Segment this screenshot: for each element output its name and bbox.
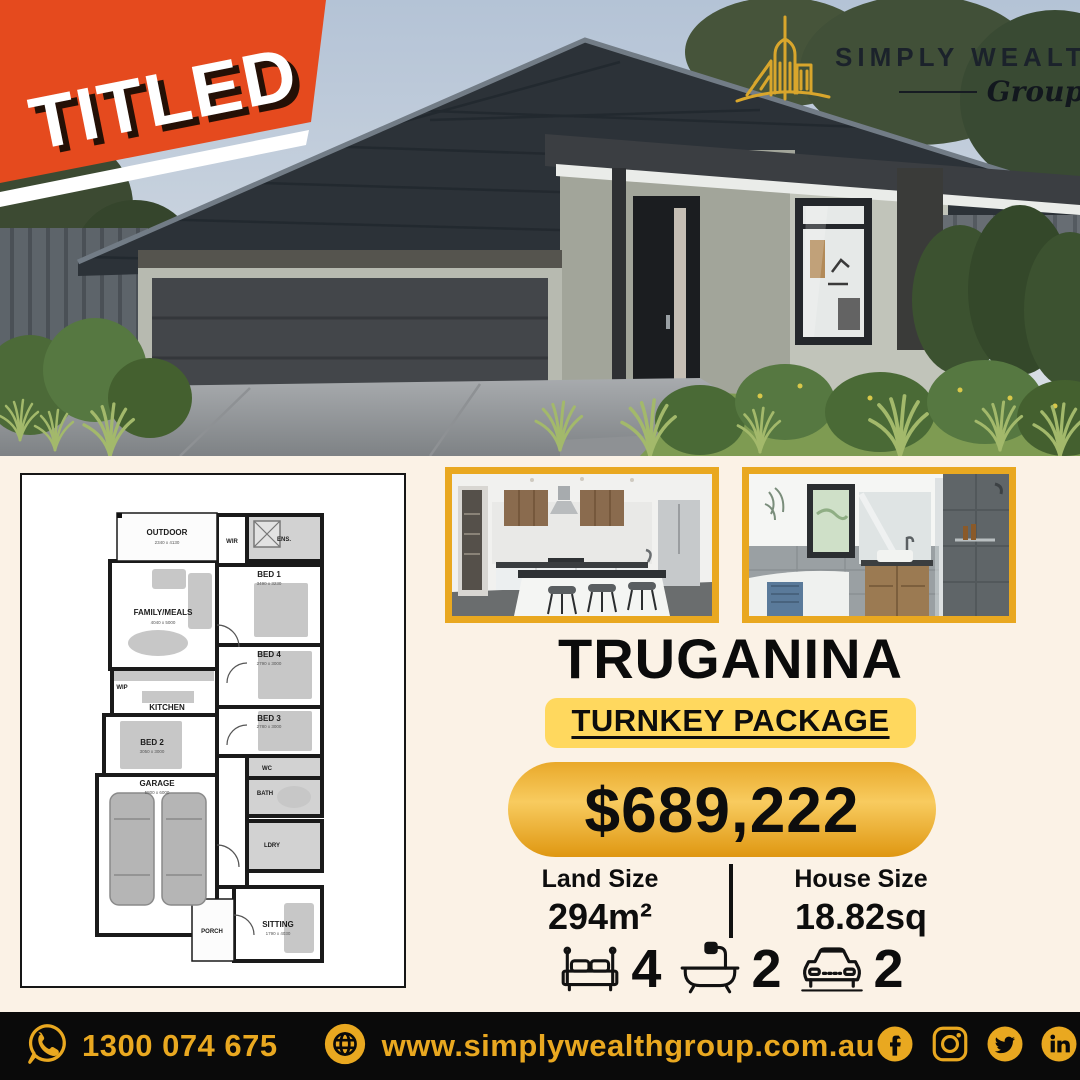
bed-icon <box>557 940 623 999</box>
room-dims: 5800 x 6000 <box>145 790 170 795</box>
facebook-icon[interactable] <box>875 1024 915 1069</box>
land-size-label: Land Size <box>488 865 713 894</box>
house-size-label: House Size <box>749 865 974 894</box>
price-badge: $689,222 <box>508 762 936 857</box>
social-links <box>875 1023 1079 1070</box>
room-dims: 3050 x 3000 <box>140 749 165 754</box>
floor-plan-drawing: OUTDOOR 2340 x 4130 WIR ENS. BED 1 3490 … <box>22 475 404 985</box>
room-dims: 2790 x 3000 <box>257 661 282 666</box>
features: 4 2 <box>445 938 1016 1000</box>
room-dims: 1790 x 4030 <box>266 931 291 936</box>
room-dims: 4040 x 5000 <box>151 620 176 625</box>
land-size-value: 294m² <box>488 896 713 938</box>
bathrooms-count: 2 <box>751 938 781 1000</box>
front-window <box>795 198 872 345</box>
room-label: WC <box>262 766 273 772</box>
room-label: PORCH <box>201 929 223 935</box>
land-size: Land Size 294m² <box>488 865 713 938</box>
kitchen-photo <box>445 467 719 623</box>
room-label: SITTING <box>262 920 294 929</box>
globe-icon <box>322 1021 368 1072</box>
buildings-icon <box>733 12 833 114</box>
room-label: BED 1 <box>257 570 281 579</box>
room-label: BATH <box>257 791 273 797</box>
poster-root: TITLED TITLED SIMPLY WEALTH® <box>0 0 1080 1080</box>
room-label: LDRY <box>264 843 280 849</box>
website-url[interactable]: www.simplywealthgroup.com.au <box>382 1028 875 1064</box>
vertical-divider <box>729 864 733 938</box>
logo-dash-left <box>899 91 977 93</box>
room-label: GARAGE <box>139 779 175 788</box>
house-size-value: 18.82sq <box>749 896 974 938</box>
floor-plan: OUTDOOR 2340 x 4130 WIR ENS. BED 1 3490 … <box>20 473 406 988</box>
footer-bar: 1300 074 675 www.simplywealthgroup.com.a… <box>0 1012 1080 1080</box>
room-label: BED 2 <box>140 738 164 747</box>
phone-number[interactable]: 1300 074 675 <box>82 1028 278 1064</box>
size-details: Land Size 294m² House Size 18.82sq <box>445 864 1016 938</box>
bedrooms-feature: 4 <box>557 938 661 1000</box>
room-label: KITCHEN <box>149 703 185 712</box>
twitter-icon[interactable] <box>985 1024 1025 1069</box>
room-dims: 2780 x 3000 <box>257 724 282 729</box>
car-icon <box>798 939 866 1000</box>
cars-feature: 2 <box>798 938 904 1000</box>
package-type-badge: TURNKEY PACKAGE <box>545 698 915 748</box>
house-size: House Size 18.82sq <box>749 865 974 938</box>
room-label: BED 3 <box>257 714 281 723</box>
bath-icon <box>677 939 743 1000</box>
instagram-icon[interactable] <box>929 1023 971 1070</box>
bedrooms-count: 4 <box>631 938 661 1000</box>
price-value: $689,222 <box>585 773 860 847</box>
brand-sub-name: Group <box>987 75 1080 108</box>
brand-logo: SIMPLY WEALTH® Group <box>733 12 1080 114</box>
cars-count: 2 <box>874 938 904 1000</box>
house-exterior-photo: TITLED TITLED SIMPLY WEALTH® <box>0 0 1080 456</box>
suburb-title: TRUGANINA <box>445 626 1016 691</box>
room-label: FAMILY/MEALS <box>134 608 193 617</box>
room-label: WIP <box>116 685 127 691</box>
whatsapp-icon[interactable] <box>24 1021 70 1072</box>
room-label: WIR <box>226 539 238 545</box>
room-label: BED 4 <box>257 650 281 659</box>
brand-name: SIMPLY WEALTH® <box>835 42 1080 73</box>
room-dims: 2340 x 4130 <box>155 540 180 545</box>
bathroom-photo <box>742 467 1016 623</box>
room-label: OUTDOOR <box>147 528 188 537</box>
linkedin-icon[interactable] <box>1039 1024 1079 1069</box>
room-label: ENS. <box>277 537 291 543</box>
room-dims: 3490 x 3230 <box>257 581 282 586</box>
bathrooms-feature: 2 <box>677 938 781 1000</box>
